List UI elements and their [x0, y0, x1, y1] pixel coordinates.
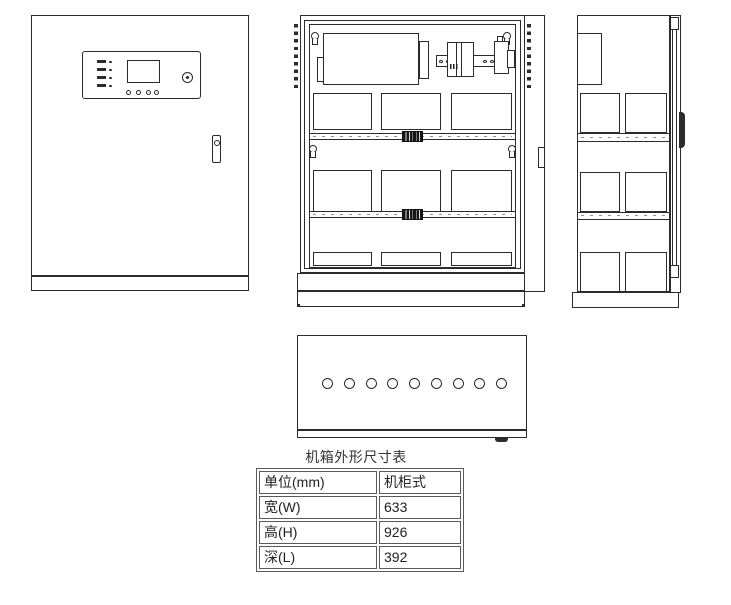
led-icon — [109, 85, 112, 88]
indicator-bar — [97, 84, 106, 87]
front-base-line — [32, 275, 248, 277]
dimension-table: 单位(mm) 机柜式 宽(W) 633 高(H) 926 深(L) 392 — [256, 468, 464, 572]
cable-gland-hole — [344, 378, 355, 389]
door-edge-channel — [672, 25, 677, 267]
table-cell-label: 高(H) — [259, 521, 377, 544]
indicator-bar — [97, 76, 106, 79]
open-door-handle — [538, 147, 545, 168]
panel-button-icon — [136, 90, 141, 95]
module — [580, 172, 620, 212]
base-upper — [297, 273, 525, 291]
module — [451, 170, 512, 212]
table-cell-label: 单位(mm) — [259, 471, 377, 494]
module — [451, 252, 512, 266]
side-top-compartment — [577, 33, 602, 85]
battery-right-tab — [419, 41, 429, 79]
breaker-line — [461, 43, 462, 76]
indicator-bar — [97, 68, 106, 71]
led-icon — [109, 69, 112, 72]
module — [313, 252, 372, 266]
keyhole-mount-icon — [311, 32, 319, 45]
terminal-end-cap — [507, 50, 515, 68]
table-row: 单位(mm) 机柜式 — [259, 471, 461, 494]
door-handle — [212, 135, 222, 163]
cabinet-dimension-drawing: 机箱外形尺寸表 单位(mm) 机柜式 宽(W) 633 高(H) 926 深(L… — [0, 0, 731, 605]
bottom-edge-line — [298, 429, 526, 432]
table-cell-value: 机柜式 — [379, 471, 461, 494]
breaker-label — [450, 64, 459, 69]
keyhole-mount-icon — [508, 145, 516, 158]
cable-gland-hole — [453, 378, 464, 389]
panel-button-icon — [154, 90, 159, 95]
door-hinge-bottom — [670, 265, 679, 279]
vent-louvers-left — [294, 24, 299, 92]
breaker-line — [456, 43, 457, 76]
module — [451, 93, 512, 130]
module — [625, 252, 667, 293]
cable-gland-hole — [496, 378, 507, 389]
side-base — [572, 292, 679, 308]
table-cell-label: 宽(W) — [259, 496, 377, 519]
side-view — [572, 15, 686, 309]
module — [313, 170, 372, 212]
display-screen — [127, 60, 160, 83]
front-view — [31, 15, 249, 291]
table-cell-value: 926 — [379, 521, 461, 544]
cable-gland-hole — [431, 378, 442, 389]
side-door-handle — [679, 112, 685, 148]
door-hinge-top — [670, 17, 679, 30]
rail-clamp — [402, 209, 423, 221]
rail-clamp — [402, 131, 423, 143]
cable-gland-hole — [474, 378, 485, 389]
cable-gland-hole — [409, 378, 420, 389]
internal-view — [293, 15, 546, 309]
battery-unit — [323, 33, 419, 85]
table-cell-value: 633 — [379, 496, 461, 519]
cable-gland-hole — [387, 378, 398, 389]
module — [625, 93, 667, 133]
dimension-table-title: 机箱外形尺寸表 — [256, 447, 456, 467]
bottom-view — [297, 335, 527, 438]
open-door-bottom-edge — [525, 291, 545, 292]
base-lower — [297, 291, 525, 308]
keyhole-mount-icon — [309, 145, 317, 158]
table-cell-label: 深(L) — [259, 546, 377, 569]
module — [580, 93, 620, 133]
module — [580, 252, 620, 293]
table-row: 宽(W) 633 — [259, 496, 461, 519]
base-corner-tick — [297, 304, 300, 307]
indicator-bar — [97, 60, 106, 63]
module — [381, 252, 441, 266]
din-rail-slot — [483, 60, 487, 63]
vent-louvers-right — [527, 24, 532, 92]
table-row: 高(H) 926 — [259, 521, 461, 544]
module — [313, 93, 372, 130]
shelf-rail — [577, 212, 670, 221]
module — [381, 170, 441, 212]
din-rail-slot — [439, 60, 443, 63]
panel-button-icon — [126, 90, 131, 95]
door-lock-icon — [214, 140, 220, 146]
module — [625, 172, 667, 212]
table-row: 深(L) 392 — [259, 546, 461, 569]
shelf-rail — [577, 133, 670, 142]
open-door-top-edge — [525, 15, 545, 16]
breaker-block — [447, 42, 474, 77]
led-icon — [109, 77, 112, 80]
module — [381, 93, 441, 130]
cable-gland-hole — [322, 378, 333, 389]
table-cell-value: 392 — [379, 546, 461, 569]
foot-bump — [495, 437, 508, 442]
cable-gland-hole — [366, 378, 377, 389]
control-panel — [82, 51, 201, 99]
panel-button-icon — [146, 90, 151, 95]
led-icon — [109, 61, 112, 64]
base-corner-tick — [522, 304, 525, 307]
